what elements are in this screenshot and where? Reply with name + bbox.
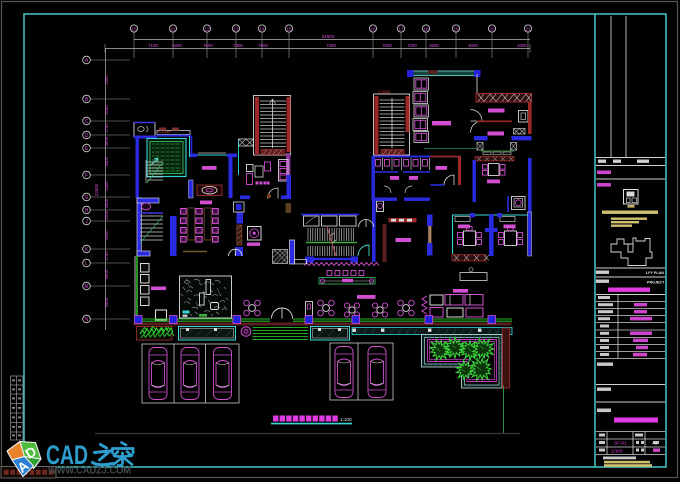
svg-text:2500: 2500 [104, 198, 109, 208]
svg-text:CAD: CAD [46, 440, 88, 470]
svg-text:34600: 34600 [322, 34, 335, 39]
svg-text:21: 21 [525, 26, 531, 31]
svg-text:C1920: C1920 [378, 90, 391, 95]
svg-text:15: 15 [286, 26, 292, 31]
svg-text:1/100: 1/100 [611, 449, 623, 454]
svg-text:12: 12 [204, 26, 210, 31]
svg-text:10: 10 [131, 26, 137, 31]
svg-text:18: 18 [423, 26, 429, 31]
svg-text:L: L [85, 261, 88, 267]
svg-text:2200: 2200 [104, 210, 109, 220]
svg-text:14: 14 [259, 26, 265, 31]
svg-text:4500: 4500 [104, 269, 109, 279]
svg-text:7600: 7600 [203, 43, 213, 48]
svg-text:5000: 5000 [172, 43, 182, 48]
svg-text:N: N [85, 317, 89, 323]
svg-text:6500: 6500 [104, 297, 109, 307]
svg-text:7200: 7200 [407, 43, 417, 48]
svg-text:3500: 3500 [429, 43, 439, 48]
svg-text:7400: 7400 [326, 43, 336, 48]
svg-text:19: 19 [453, 26, 459, 31]
svg-text:PROJECT: PROJECT [647, 280, 665, 284]
svg-text:13: 13 [233, 26, 239, 31]
svg-text:16: 16 [370, 26, 376, 31]
svg-text:11: 11 [171, 26, 176, 31]
svg-text:G: G [85, 195, 89, 201]
svg-text:M: M [84, 284, 88, 290]
svg-text:7500: 7500 [258, 43, 268, 48]
svg-text:1:100: 1:100 [340, 417, 352, 422]
svg-text:LFY PLAN: LFY PLAN [646, 271, 664, 275]
svg-text:C: C [85, 119, 89, 125]
svg-text:7500: 7500 [382, 43, 392, 48]
svg-text:A2: A2 [652, 441, 658, 446]
svg-text:4200: 4200 [104, 105, 109, 115]
svg-text:SF-01: SF-01 [614, 441, 627, 446]
svg-text:3300: 3300 [517, 43, 527, 48]
svg-text:20: 20 [489, 26, 495, 31]
svg-text:D: D [85, 133, 89, 139]
svg-text:2600: 2600 [104, 136, 109, 146]
svg-text:2700: 2700 [104, 251, 109, 261]
svg-text:17: 17 [398, 26, 404, 31]
svg-text:H: H [85, 208, 89, 214]
svg-text:7300: 7300 [233, 43, 243, 48]
svg-text:4300: 4300 [104, 181, 109, 191]
svg-text:7100: 7100 [148, 43, 158, 48]
svg-text:2700: 2700 [104, 123, 109, 133]
svg-text:5300: 5300 [104, 156, 109, 166]
svg-text:1500: 1500 [104, 75, 109, 85]
svg-text:3000: 3000 [468, 43, 478, 48]
svg-text:23500: 23500 [94, 183, 99, 196]
svg-text:F: F [85, 173, 88, 179]
svg-text:5400: 5400 [104, 230, 109, 240]
